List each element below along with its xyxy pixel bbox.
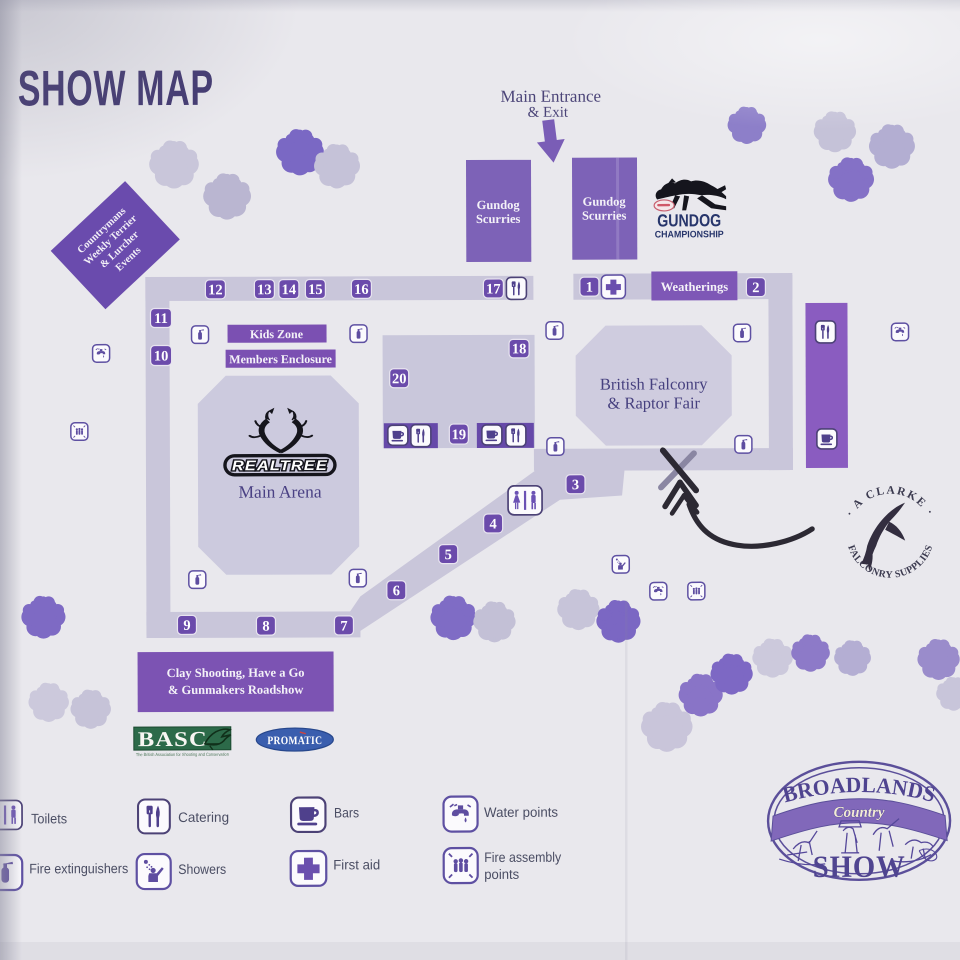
svg-text:5: 5 bbox=[445, 547, 452, 563]
svg-text:The British Association for Sh: The British Association for Shooting and… bbox=[136, 752, 229, 757]
svg-text:Scurries: Scurries bbox=[476, 212, 521, 226]
svg-text:Showers: Showers bbox=[178, 862, 226, 877]
svg-text:3: 3 bbox=[572, 477, 579, 493]
svg-text:11: 11 bbox=[154, 311, 168, 327]
svg-text:FALCONRY SUPPLIES: FALCONRY SUPPLIES bbox=[845, 543, 935, 581]
svg-text:Main Entrance: Main Entrance bbox=[500, 87, 601, 106]
svg-text:4: 4 bbox=[489, 516, 496, 532]
svg-text:2: 2 bbox=[752, 280, 759, 296]
svg-text:12: 12 bbox=[208, 282, 223, 298]
svg-text:& Gunmakers Roadshow: & Gunmakers Roadshow bbox=[168, 683, 303, 697]
svg-text:Bars: Bars bbox=[334, 805, 359, 820]
svg-text:& Raptor Fair: & Raptor Fair bbox=[607, 393, 700, 412]
svg-text:Catering: Catering bbox=[178, 810, 229, 825]
svg-text:CHAMPIONSHIP: CHAMPIONSHIP bbox=[655, 229, 725, 240]
svg-text:PROMATIC: PROMATIC bbox=[267, 735, 322, 747]
svg-text:18: 18 bbox=[512, 341, 527, 357]
svg-text:Water points: Water points bbox=[484, 805, 558, 820]
svg-text:Weatherings: Weatherings bbox=[661, 280, 729, 294]
svg-text:Main Arena: Main Arena bbox=[238, 481, 321, 501]
svg-text:GUNDOG: GUNDOG bbox=[657, 210, 721, 230]
svg-text:9: 9 bbox=[183, 618, 190, 634]
svg-text:6: 6 bbox=[393, 583, 400, 599]
svg-text:Kids Zone: Kids Zone bbox=[250, 327, 304, 341]
svg-text:Scurries: Scurries bbox=[582, 209, 627, 223]
svg-text:17: 17 bbox=[486, 281, 501, 297]
svg-text:Members Enclosure: Members Enclosure bbox=[229, 352, 332, 366]
svg-text:Clay Shooting, Have a Go: Clay Shooting, Have a Go bbox=[167, 666, 305, 680]
svg-text:points: points bbox=[484, 867, 519, 882]
svg-text:19: 19 bbox=[452, 427, 467, 443]
svg-text:Toilets: Toilets bbox=[31, 811, 67, 826]
svg-text:Fire extinguishers: Fire extinguishers bbox=[29, 861, 128, 876]
svg-text:16: 16 bbox=[354, 282, 369, 298]
svg-text:Country: Country bbox=[834, 805, 885, 821]
svg-text:SHOW: SHOW bbox=[813, 849, 906, 884]
svg-text:& Exit: & Exit bbox=[528, 105, 569, 121]
svg-text:14: 14 bbox=[282, 282, 297, 298]
svg-text:BASC: BASC bbox=[138, 727, 208, 751]
svg-text:1: 1 bbox=[586, 280, 593, 296]
svg-text:First aid: First aid bbox=[333, 857, 380, 872]
svg-text:British Falconry: British Falconry bbox=[600, 374, 709, 393]
svg-text:20: 20 bbox=[392, 371, 407, 387]
svg-text:Fire assembly: Fire assembly bbox=[484, 850, 561, 865]
svg-text:REALTREE: REALTREE bbox=[232, 457, 328, 473]
svg-text:15: 15 bbox=[308, 282, 323, 298]
svg-text:10: 10 bbox=[154, 348, 169, 364]
svg-text:8: 8 bbox=[262, 619, 269, 635]
svg-text:Gundog: Gundog bbox=[583, 195, 627, 209]
svg-text:7: 7 bbox=[340, 618, 347, 634]
svg-text:Gundog: Gundog bbox=[477, 198, 521, 212]
svg-text:13: 13 bbox=[257, 282, 272, 298]
